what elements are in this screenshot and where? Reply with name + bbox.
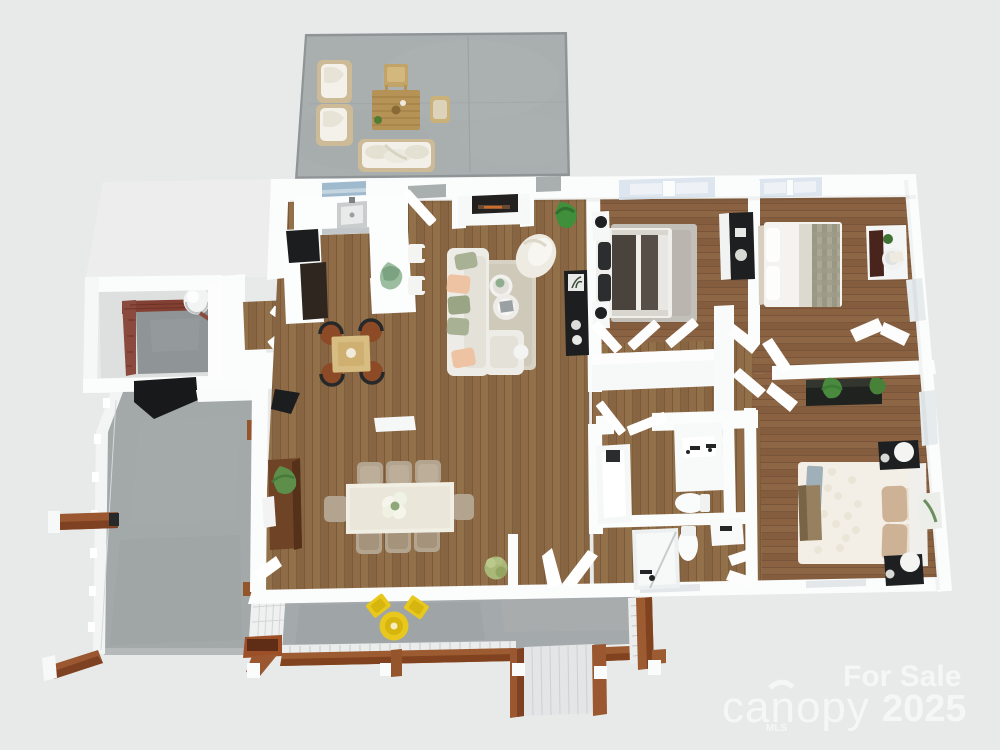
svg-text:canopy: canopy (722, 683, 870, 732)
svg-text:MLS: MLS (766, 723, 787, 734)
svg-text:2025: 2025 (882, 688, 967, 730)
